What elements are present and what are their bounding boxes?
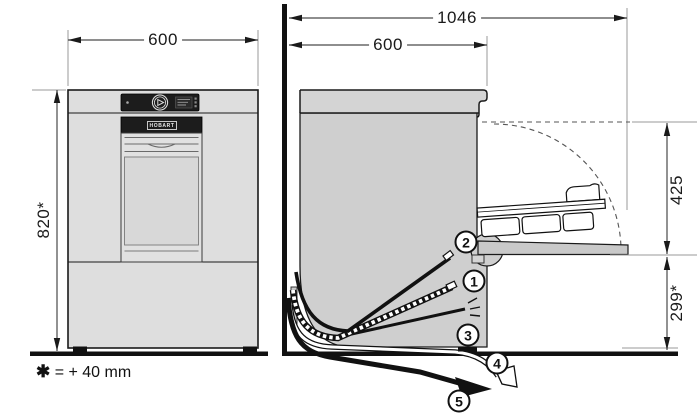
brand-logo-text: HOBART (150, 123, 175, 129)
footnote-star: ✱ (36, 362, 50, 381)
callout-1: 1 (463, 270, 486, 293)
front-floor-line (30, 352, 268, 357)
arrow-right-icon (245, 37, 258, 43)
arrow-up-icon (54, 90, 60, 103)
total-depth-dimension-label: 1046 (433, 9, 481, 27)
worktop-fill (300, 90, 487, 113)
callout-4-label: 4 (493, 355, 501, 371)
front-view (30, 30, 268, 356)
arrow-left-icon (289, 42, 302, 48)
hose-level-dimension-label: 299* (668, 281, 686, 326)
arrow-right-icon (474, 42, 487, 48)
dish-rack (476, 183, 607, 237)
right-foot (243, 347, 257, 353)
open-door (478, 241, 628, 255)
door-hinge-base (472, 255, 484, 263)
footnote-text: = + 40 mm (55, 364, 131, 381)
front-width-dimension-label: 600 (144, 31, 182, 49)
side-foot (458, 347, 477, 352)
side-view (282, 4, 697, 397)
brand-logo: HOBART (147, 121, 177, 130)
front-door (121, 117, 202, 262)
door-recess (125, 157, 199, 245)
rack-compartment-3 (563, 212, 594, 231)
body-depth-dimension-label: 600 (369, 36, 407, 54)
installation-diagram: 600 820* 1046 600 425 299* HOBART ✱ = + … (0, 0, 700, 420)
diagram-lineart (0, 0, 700, 420)
callout-2: 2 (455, 231, 478, 254)
panel-key-1 (195, 98, 197, 100)
rack-clearance-dimension-label: 425 (668, 171, 686, 209)
callout-1-label: 1 (470, 273, 478, 289)
front-height-dimension-label: 820* (35, 198, 53, 243)
arrow-left-icon (68, 37, 81, 43)
callout-2-label: 2 (462, 234, 470, 250)
left-foot (73, 347, 87, 353)
footnote: ✱ = + 40 mm (36, 362, 131, 382)
callout-5: 5 (448, 390, 471, 413)
panel-key-3 (195, 105, 197, 107)
arrow-down-icon (54, 338, 60, 351)
arrow-left-icon (289, 15, 302, 21)
side-floor-line (282, 352, 678, 357)
callout-3-label: 3 (464, 327, 472, 343)
callout-3: 3 (457, 324, 480, 347)
callout-5-label: 5 (455, 393, 463, 409)
power-indicator (126, 101, 129, 104)
arrow-up-icon (664, 257, 670, 270)
arrow-up-icon (664, 123, 670, 136)
panel-key-2 (195, 101, 197, 103)
arrow-down-icon (664, 241, 670, 254)
rack-compartment-2 (522, 214, 561, 234)
rack-compartment-1 (481, 217, 520, 237)
callout-4: 4 (486, 352, 509, 375)
rack-handle (566, 184, 600, 202)
arrow-right-icon (614, 15, 627, 21)
control-panel (121, 94, 199, 111)
